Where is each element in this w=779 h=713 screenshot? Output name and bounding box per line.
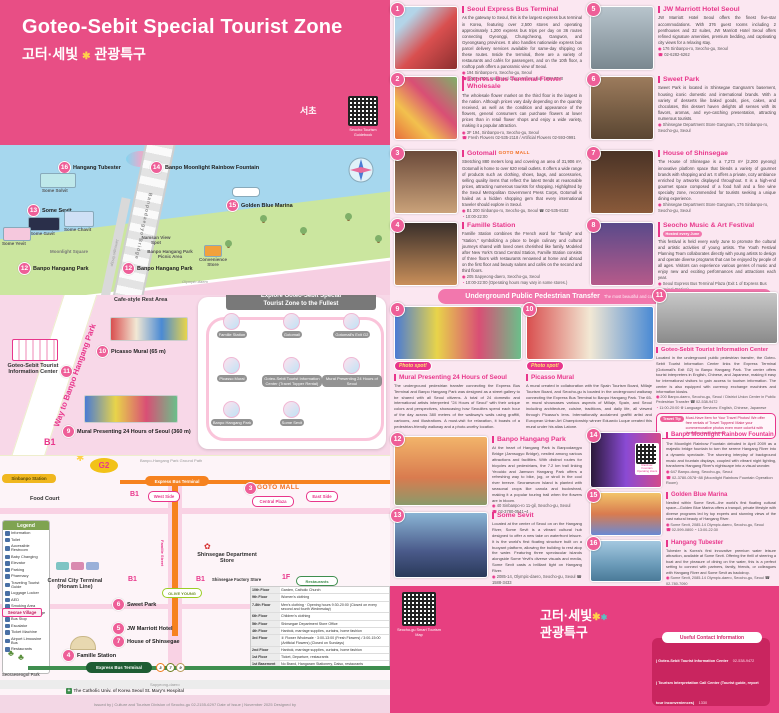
star-icon: ✱ bbox=[82, 51, 90, 62]
footer-qr-caption: Seocho-gu Smart Tourism Map bbox=[394, 628, 444, 638]
legend-item-icon bbox=[5, 598, 10, 603]
sinbanpo-station-badge: Sinbanpo Station bbox=[2, 474, 56, 483]
star-icon: ✱ bbox=[601, 613, 608, 622]
entry-famille-station: 4 Famille Station Famille Station combin… bbox=[394, 222, 582, 288]
tree-icon bbox=[225, 240, 232, 247]
gotomall-brand-logo: GOTO MALL bbox=[498, 151, 529, 156]
seoraeseogol-park-label: Seoraeseogol Park bbox=[2, 672, 46, 677]
route-step-label: Picasso Mural bbox=[217, 375, 246, 382]
route-step-illustration bbox=[223, 401, 240, 418]
qr-code bbox=[636, 444, 656, 464]
photo-mural-24h bbox=[394, 306, 522, 360]
photo-spot-badge: Photo spot! bbox=[526, 361, 564, 371]
page-subtitle-korean: 고터·세빛 ✱ 관광특구 bbox=[22, 44, 146, 64]
poi-label: Picasso Mural (65 m) bbox=[111, 349, 166, 355]
legend-item-icon bbox=[5, 639, 10, 644]
entry-number: 2 bbox=[390, 72, 405, 87]
legend-item-icon bbox=[5, 531, 10, 536]
floor-cell: 2nd Floor bbox=[251, 647, 280, 653]
some-gavit-label: Some Gavit bbox=[30, 231, 55, 236]
explore-route-title: Explore Goteo-Sebit Special Tourist Zone… bbox=[226, 295, 376, 310]
olive-young-badge: OLIVE YOUNG bbox=[162, 588, 202, 598]
tree-icon bbox=[375, 235, 382, 242]
floor-guide-row: 3rd Floor ② Flower Wholesale · 3:00-13:0… bbox=[251, 635, 389, 647]
poi-number: 13 bbox=[27, 204, 40, 217]
map-poi-mural-24h: 9 Mural Presenting 24 Hours of Seoul (36… bbox=[62, 425, 191, 438]
tree-icon bbox=[260, 215, 267, 222]
some-chavit-building bbox=[64, 211, 94, 227]
logo-line1: 고터·세빛 bbox=[540, 608, 592, 623]
some-yevit-label: Some Yevit bbox=[2, 241, 26, 246]
poi-number: 14 bbox=[150, 161, 163, 174]
entry-body: A mural created in collaboration with th… bbox=[526, 383, 652, 429]
floor-cell: 10th Floor bbox=[251, 587, 280, 593]
entry-number: 13 bbox=[390, 508, 405, 523]
poi-label: JW Marriott Hotel bbox=[127, 626, 173, 632]
map-poi-jw-marriott: 5 JW Marriott Hotel bbox=[112, 622, 173, 635]
entry-body: As the gateway to Seoul, this is the lar… bbox=[462, 15, 582, 70]
poi-number: 15 bbox=[226, 199, 239, 212]
photo-famille-station bbox=[394, 222, 458, 286]
some-yevit-building bbox=[3, 227, 31, 241]
sapyeong-daero-road bbox=[0, 680, 390, 689]
route-step-illustration bbox=[283, 357, 300, 374]
entry-body: Stretching 880 meters long and covering … bbox=[462, 159, 582, 208]
photo-flower-wholesale bbox=[394, 76, 458, 140]
compass-icon bbox=[348, 157, 374, 183]
some-solvit-building bbox=[40, 173, 76, 188]
transfer-banner-title: Underground Public Pedestrian Transfer bbox=[465, 293, 600, 300]
route-step-label: Gotomall bbox=[282, 331, 302, 338]
explore-title-line2: Tourist Zone to the Fullest bbox=[226, 300, 376, 308]
route-step: Some Sevit bbox=[262, 401, 322, 445]
terminal-floor-map: Banpo-Hangang Park Ground Path ✱ G2 Sinb… bbox=[0, 455, 390, 696]
legend-item-icon bbox=[5, 624, 10, 629]
legend-item-icon bbox=[5, 568, 10, 573]
route-step-illustration bbox=[283, 313, 300, 330]
entry-mural-24h: 9 Photo spot! Mural Presenting 24 Hours … bbox=[394, 306, 520, 432]
entry-title: Sweet Park bbox=[663, 76, 699, 83]
convenience-store-label: Convenience Store bbox=[196, 257, 230, 267]
route-step-illustration bbox=[343, 313, 360, 330]
legend-item-label: Bus Stop bbox=[11, 617, 27, 621]
legend-item: Accessible Restroom bbox=[3, 543, 49, 554]
entry-hours: ◔ 11:00-20:00 ※ Language Services: Engli… bbox=[656, 406, 776, 412]
map-poi-picasso-mural: 10 Picasso Mural (65 m) bbox=[96, 345, 166, 358]
entry-gotomall: 3 GotomallGOTO MALL Stretching 880 meter… bbox=[394, 150, 582, 218]
legend-item-label: Baby Changing bbox=[11, 555, 38, 559]
photo-hangang-tubester bbox=[590, 540, 662, 582]
entry-title: Gotomall bbox=[467, 150, 496, 157]
poi-number: 5 bbox=[112, 622, 125, 635]
entry-body: Located in the underground public pedest… bbox=[656, 355, 776, 395]
mural-24h-strip bbox=[84, 395, 178, 423]
shinsegae-dept-label: Shinsegae Department Store bbox=[196, 552, 258, 564]
legend-item-icon bbox=[5, 630, 10, 635]
entry-body: JW Marriott Hotel Seoul offers the fines… bbox=[658, 15, 776, 45]
some-solvit-label: Some Solvit bbox=[42, 188, 68, 193]
tree-icon: ♣ bbox=[8, 648, 14, 658]
subway-line-number: 7 bbox=[166, 663, 175, 672]
qr-caption: Seocho Tourism Guidebook bbox=[340, 128, 386, 138]
legend-item-icon bbox=[5, 617, 10, 622]
entry-phone: ☎ Fresh Flowers 02-535-2118 / Artificial… bbox=[462, 135, 582, 141]
photo-picasso-mural bbox=[526, 306, 654, 360]
poi-number: 7 bbox=[112, 635, 125, 648]
marina-boat-icon bbox=[232, 187, 260, 197]
entry-seocho-music-art-festival: 8 Seocho Music & Art FestivalHosted ever… bbox=[590, 222, 776, 288]
poi-number: 9 bbox=[62, 425, 75, 438]
entry-hours: ◔ 10:00-22:00 bbox=[462, 214, 582, 220]
floor-cell: 9th Floor bbox=[251, 594, 280, 600]
legend-item-label: Luggage Locker bbox=[11, 591, 39, 595]
entry-seoul-express-bus-terminal: 1 Seoul Express Bus Terminal As the gate… bbox=[394, 6, 582, 72]
gotomall-logo: GOTO MALL bbox=[257, 484, 299, 491]
photo-sweet-park bbox=[590, 76, 654, 140]
floor-cell: 1st Floor bbox=[251, 654, 280, 660]
poi-label: Mural Presenting 24 Hours of Seoul (360 … bbox=[77, 429, 191, 435]
photo-spot-badge: Photo spot! bbox=[394, 361, 432, 371]
shinsegae-flower-icon: ✿ bbox=[204, 542, 211, 551]
entry-number: 7 bbox=[586, 146, 601, 161]
star-icon: ✱ bbox=[76, 455, 84, 464]
issued-line: Issued by | Culture and Tourism Division… bbox=[94, 702, 296, 707]
contact-box-title: Useful Contact Information bbox=[662, 632, 762, 643]
info-center-building bbox=[12, 339, 58, 361]
contact-label: Goteo-Sebit Tourist Information Center bbox=[656, 659, 728, 663]
entry-tourist-info-center: 11 Goteo-Sebit Tourist Information Cente… bbox=[656, 292, 776, 432]
gotomall-number: 3 bbox=[244, 482, 257, 495]
entry-jw-marriott: 5 JW Marriott Hotel Seoul JW Marriott Ho… bbox=[590, 6, 776, 72]
route-step-illustration bbox=[223, 313, 240, 330]
legend-item-label: Escalator bbox=[11, 624, 27, 628]
route-step-illustration bbox=[283, 401, 300, 418]
floor-guide-row: 9th Floor Women's clothing bbox=[251, 594, 389, 601]
entry-title: Picasso Mural bbox=[531, 374, 574, 381]
floor-guide-row: 4th Floor Hanbok, marriage supplies, cur… bbox=[251, 628, 389, 635]
floor-guide-row: 10th Floor Garden, Catholic Church bbox=[251, 587, 389, 594]
entry-title: Goteo-Sebit Tourist Information Center bbox=[661, 347, 768, 353]
east-side-badge: East Side bbox=[306, 491, 338, 502]
floor-cell: 4th Floor bbox=[251, 628, 280, 634]
west-side-badge: West Side bbox=[148, 491, 180, 502]
entry-title: JW Marriott Hotel Seoul bbox=[663, 6, 740, 13]
entry-title: Banpo Moonlight Rainbow Fountain bbox=[671, 432, 774, 439]
photo-tourist-info-center bbox=[656, 292, 778, 344]
picnic-area-label: Banpo Hangang Park Picnic Area bbox=[142, 249, 198, 259]
photo-jw-marriott bbox=[590, 6, 654, 70]
entry-number: 6 bbox=[586, 72, 601, 87]
route-step-label: Famille Station bbox=[217, 331, 247, 338]
shinsegae-factory-store-label: Shinsegae Factory Store bbox=[212, 577, 261, 582]
entry-number: 9 bbox=[390, 302, 405, 317]
map-poi-banpo-park-west: 12 Banpo Hangang Park bbox=[18, 262, 89, 275]
floor-guide-row: 2nd Floor Hanbok, marriage supplies, cur… bbox=[251, 647, 389, 654]
legend-item: Traveling Tourist Guide bbox=[3, 580, 49, 591]
entry-phone: ☎ 02-3780-0578~88 (Moonlight Rainbow Fou… bbox=[666, 475, 776, 486]
floor-description-cell: Garden, Catholic Church bbox=[280, 587, 389, 593]
header: Goteo-Sebit Special Tourist Zone 고터·세빛 ✱… bbox=[0, 0, 390, 145]
bus-icon bbox=[56, 562, 69, 570]
subway-line-numbers: 379 bbox=[156, 663, 185, 672]
ground-path-label: Banpo-Hangang Park Ground Path bbox=[140, 458, 202, 463]
poi-label: Famille Station bbox=[77, 653, 116, 659]
floor-description-cell: Men's clothing · Opening hours 9:30-20:0… bbox=[280, 602, 389, 613]
map-poi-house-of-shinsegae: 7 House of Shinsegae bbox=[112, 635, 180, 648]
poi-label: Banpo Hangang Park bbox=[33, 266, 89, 272]
sapyeong-daero-label: Sapyeong-daero bbox=[150, 682, 180, 687]
floor-description-cell: Shinsegae Department Store Office bbox=[280, 621, 389, 627]
issued-bar: Issued by | Culture and Tourism Division… bbox=[0, 695, 390, 713]
walkway-map: Way to Banpo Hangang Park Cafe-style Res… bbox=[0, 295, 390, 455]
poi-number: 10 bbox=[96, 345, 109, 358]
b1-label-factory: B1 bbox=[196, 576, 205, 583]
entry-body: Nestled within Some Sevit—the world's fi… bbox=[666, 501, 776, 523]
photo-seoul-express-bus-terminal bbox=[394, 6, 458, 70]
floor-guide-row: 6th Floor Children's clothing bbox=[251, 613, 389, 620]
central-city-terminal-label: Central City Terminal (Honam Line) bbox=[44, 578, 106, 590]
info-center-label: Goteo-Sebit Tourist Information Center bbox=[0, 363, 66, 375]
info-center-number: 11 bbox=[60, 365, 73, 378]
moonlight-square-label: Moonlight Square bbox=[50, 249, 88, 254]
poi-number: 12 bbox=[18, 262, 31, 275]
entry-title: Seoul Express Bus Terminal bbox=[467, 6, 558, 13]
entry-body: Tubester is Korea's first innovative pre… bbox=[666, 549, 776, 577]
namsan-view-spot-label: Namsan View Spot bbox=[136, 235, 176, 245]
floor-description-cell: Hanbok, marriage supplies, curtains, hom… bbox=[280, 647, 389, 653]
route-step: Banpo Hangang Park bbox=[202, 401, 262, 445]
contact-value: 02-538-9472 bbox=[733, 659, 755, 663]
photo-some-sevit bbox=[394, 512, 488, 578]
entry-body: The wholesale flower market on the third… bbox=[462, 93, 582, 130]
logo-line2: 관광특구 bbox=[540, 625, 607, 641]
entry-body: The Moonlight Rainbow Fountain debuted i… bbox=[666, 441, 776, 469]
entry-body: Located at the center of Seoul on on the… bbox=[492, 521, 582, 573]
legend-item-icon bbox=[5, 555, 10, 560]
entry-body: Famille Station combines the French word… bbox=[462, 231, 582, 274]
route-step: Gotomall bbox=[262, 313, 322, 357]
entry-number: 15 bbox=[586, 488, 601, 503]
legend-item-label: Traveling Tourist Guide bbox=[11, 581, 47, 590]
b1-label-center: B1 bbox=[128, 576, 137, 583]
legend-title: Legend bbox=[3, 521, 49, 530]
catholic-hospital-label: +The Catholic Univ. of Korea Seoul St. M… bbox=[66, 688, 184, 694]
legend-items: Information Toilet Accessible Restroom bbox=[3, 530, 49, 653]
seorae-village-label: Seorae Village bbox=[2, 608, 42, 617]
entry-body: The House of Shinsegae is a 7,273 m² (2,… bbox=[658, 159, 776, 202]
route-step-label: Mural Presenting 24 Hours of Seoul bbox=[322, 375, 382, 387]
picasso-mural-strip bbox=[110, 317, 188, 341]
floor-cell: 5th Floor bbox=[251, 621, 280, 627]
legend-item-label: Ticket Machine bbox=[11, 630, 37, 634]
exit-g2-badge: G2 bbox=[90, 458, 118, 473]
guidebook-qr-code bbox=[348, 96, 378, 126]
f1-label: 1F bbox=[282, 574, 290, 581]
route-steps: Famille Station Gotomall Gotomall's Exit… bbox=[202, 313, 382, 445]
travel-tip-badge: Travel Tip bbox=[660, 416, 684, 422]
poi-label: Banpo Hangang Park bbox=[137, 266, 193, 272]
contact-item: Tourism Interpretation Call Center (Tour… bbox=[656, 670, 766, 710]
entry-title: Mural Presenting 24 Hours of Seoul bbox=[399, 374, 507, 381]
photo-gotomall bbox=[394, 150, 458, 214]
legend-item-icon bbox=[5, 561, 10, 566]
poi-label: Golden Blue Marina bbox=[241, 203, 293, 209]
entry-flower-wholesale: 2 Express Bus Terminal Flower Wholesale … bbox=[394, 76, 582, 146]
entry-house-of-shinsegae: 7 House of Shinsegae The House of Shinse… bbox=[590, 150, 776, 218]
subway-line-number: 3 bbox=[156, 663, 165, 672]
entry-banpo-hangang-park: 12 Banpo Hangang Park At the heart of Ha… bbox=[394, 436, 582, 508]
legend-item-label: Parking bbox=[11, 568, 24, 572]
olympic-daero-label: Olympic-daero bbox=[182, 279, 208, 284]
legend-item-label: AED bbox=[11, 598, 19, 602]
express-bus-terminal-station-green-badge: Express Bus Terminal bbox=[86, 662, 152, 673]
entry-hangang-tubester: 16 Hangang Tubester Tubester is Korea's … bbox=[590, 540, 776, 584]
poi-label: Banpo Moonlight Rainbow Fountain bbox=[165, 165, 259, 171]
entry-moonlight-rainbow-fountain: 14 Rainbow Fountain Operating Hours Banp… bbox=[590, 432, 776, 490]
route-step: Gotomall's Exit G2 bbox=[322, 313, 382, 357]
legend-item-label: Pharmacy bbox=[11, 574, 29, 578]
poi-label: Hangang Tubester bbox=[73, 165, 121, 171]
footer-korean-logo: 고터·세빛✱✱ 관광특구 bbox=[540, 608, 607, 641]
entry-number: 16 bbox=[586, 536, 601, 551]
subway-line-number: 9 bbox=[176, 663, 185, 672]
entry-title: Seocho Music & Art Festival bbox=[663, 222, 754, 229]
some-gavit-building bbox=[28, 217, 60, 231]
entry-phone: ☎ 02-599-0800 ◔ 13:00-22:30 bbox=[666, 528, 776, 534]
entry-golden-blue-marina: 15 Golden Blue Marina Nestled within Som… bbox=[590, 492, 776, 538]
legend-item-label: Accessible Restroom bbox=[11, 544, 47, 553]
route-step-label: Some Sevit bbox=[280, 419, 304, 426]
floor-description-cell: ② Flower Wholesale · 3:00-13:00 (Fresh F… bbox=[280, 635, 389, 646]
entry-phone: ☎ 02-6282-6262 bbox=[658, 52, 776, 58]
express-bus-terminal-station-badge: Express Bus Terminal bbox=[145, 476, 209, 486]
photo-seocho-festival bbox=[590, 222, 654, 286]
entry-number: 3 bbox=[390, 146, 405, 161]
entry-body: At the heart of Hangang Park is Banpodae… bbox=[492, 445, 582, 503]
famille-street-label: Famille Street bbox=[160, 540, 165, 566]
route-step-label: Goteo-Sebit Tourist Information Center (… bbox=[262, 375, 322, 387]
floor-description-cell: Ticket, Departure, restaurants bbox=[280, 654, 389, 660]
entry-number: 8 bbox=[586, 218, 601, 233]
cafe-rest-area-label: Cafe-style Rest Area bbox=[114, 297, 167, 303]
route-step: Goteo-Sebit Tourist Information Center (… bbox=[262, 357, 322, 401]
footer: Seocho-gu Smart Tourism Map 고터·세빛✱✱ 관광특구… bbox=[390, 586, 779, 713]
food-court-label: Food Court bbox=[30, 496, 60, 502]
map-poi-banpo-park-east: 12 Banpo Hangang Park bbox=[122, 262, 193, 275]
corridor-shape bbox=[0, 508, 390, 514]
map-poi-moonlight-fountain: 14 Banpo Moonlight Rainbow Fountain bbox=[150, 161, 259, 174]
b1-label-west: B1 bbox=[130, 491, 139, 498]
hospital-name: The Catholic Univ. of Korea Seoul St. Ma… bbox=[74, 688, 185, 693]
entry-number: 1 bbox=[390, 2, 405, 17]
contact-box: Goteo-Sebit Tourist Information Center 0… bbox=[652, 638, 770, 706]
map-poi-famille-station: 4 Famille Station bbox=[62, 649, 116, 662]
poi-label: House of Shinsegae bbox=[127, 639, 180, 645]
restaurants-badge: Restaurants bbox=[296, 576, 338, 586]
route-step: Mural Presenting 24 Hours of Seoul bbox=[322, 357, 382, 401]
legend-item-icon bbox=[5, 574, 10, 579]
convenience-store-icon bbox=[204, 245, 222, 257]
map-poi-golden-blue-marina: 15 Golden Blue Marina bbox=[226, 199, 293, 212]
route-step: Picasso Mural bbox=[202, 357, 262, 401]
floor-cell: 6th Floor bbox=[251, 613, 280, 619]
entry-title: Banpo Hangang Park bbox=[497, 436, 566, 443]
floor-cell: 3rd Floor bbox=[251, 635, 280, 646]
entry-number: 5 bbox=[586, 2, 601, 17]
entry-body: The underground pedestrian transfer conn… bbox=[394, 383, 520, 429]
legend-item-label: Elevator bbox=[11, 561, 25, 565]
floor-guide-row: 5th Floor Shinsegae Department Store Off… bbox=[251, 621, 389, 628]
entry-some-sevit: 13 Some Sevit Located at the center of S… bbox=[394, 512, 582, 580]
photo-banpo-hangang-park bbox=[394, 436, 488, 506]
entry-picasso-mural: 10 Photo spot! Picasso Mural A mural cre… bbox=[526, 306, 652, 432]
central-plaza-badge: Central Plaza bbox=[252, 496, 294, 507]
route-step-illustration bbox=[223, 357, 240, 374]
some-chavit-label: Some Chavit bbox=[64, 227, 91, 232]
page-title: Goteo-Sebit Special Tourist Zone bbox=[22, 16, 343, 39]
legend-item-icon bbox=[5, 546, 10, 551]
floor-description-cell: Children's clothing bbox=[280, 613, 389, 619]
legend-item-icon bbox=[5, 591, 10, 596]
b1-level-label: B1 bbox=[44, 437, 56, 447]
hosted-every-june-badge: Hosted every June bbox=[663, 231, 702, 236]
bus-icon bbox=[71, 562, 84, 570]
fountain-hours-qr: Rainbow Fountain Operating Hours bbox=[635, 443, 659, 475]
seocho-city-logo: 서초 bbox=[300, 104, 317, 117]
legend-item-icon bbox=[5, 538, 10, 543]
entry-title: Golden Blue Marina bbox=[671, 492, 727, 499]
entry-body: Sweet Park is located in Shinsegae Gangn… bbox=[658, 85, 776, 122]
hospital-cross-icon: + bbox=[66, 688, 72, 694]
legend-item-label: Toilet bbox=[11, 538, 20, 542]
route-step-illustration bbox=[343, 357, 360, 374]
floor-guide-table: 10th Floor Garden, Catholic Church 9th F… bbox=[250, 586, 390, 668]
entry-address: ◉ 2085-14, Olympic-daero, Seocho-gu, Seo… bbox=[492, 574, 582, 586]
entry-number: 4 bbox=[390, 218, 405, 233]
floor-cell: 7-8th Floor bbox=[251, 602, 280, 613]
smart-tourism-qr-code bbox=[402, 592, 436, 626]
route-step-label: Gotomall's Exit G2 bbox=[333, 331, 370, 338]
entry-title: Famille Station bbox=[467, 222, 515, 229]
entry-address: ◉ Shinsegae Department Store Gangnam, 17… bbox=[658, 202, 776, 214]
tree-icon: ♣ bbox=[18, 652, 24, 662]
poi-label: Sweet Park bbox=[127, 602, 156, 608]
entry-title: Express Bus Terminal Flower Wholesale bbox=[467, 76, 582, 91]
subway-line-vertical bbox=[172, 486, 178, 636]
entry-number: 14 bbox=[586, 428, 601, 443]
river-map: Banpodaegyo Bridge Jamsugyo Bridge 16 Ha… bbox=[0, 145, 390, 295]
legend-item-icon bbox=[5, 583, 10, 588]
bus-icon bbox=[86, 562, 99, 570]
entry-number: 12 bbox=[390, 432, 405, 447]
poi-number: 6 bbox=[112, 598, 125, 611]
photo-house-of-shinsegae bbox=[590, 150, 654, 214]
floor-description-cell: Women's clothing bbox=[280, 594, 389, 600]
entry-number: 11 bbox=[652, 288, 667, 303]
entry-body: This festival is held every early June t… bbox=[658, 239, 776, 282]
map-poi-sweet-park: 6 Sweet Park bbox=[112, 598, 156, 611]
legend-item-label: Airport Limousine Bus bbox=[11, 637, 47, 646]
subtitle-part2: 관광특구 bbox=[94, 46, 146, 62]
poi-number: 12 bbox=[122, 262, 135, 275]
entry-number: 10 bbox=[522, 302, 537, 317]
entry-address: ◉ 200 Banpo-daero, Seocho-gu, Seoul / Di… bbox=[656, 395, 776, 406]
floor-guide-row: 1st Floor Ticket, Departure, restaurants bbox=[251, 654, 389, 661]
entry-hours: ◔ 10:00-22:00 (Operating hours may vary … bbox=[462, 280, 582, 286]
contact-value: 1330 bbox=[699, 701, 707, 705]
legend-item-label: Information bbox=[11, 531, 30, 535]
contact-label: Tourism Interpretation Call Center (Tour… bbox=[656, 681, 759, 705]
